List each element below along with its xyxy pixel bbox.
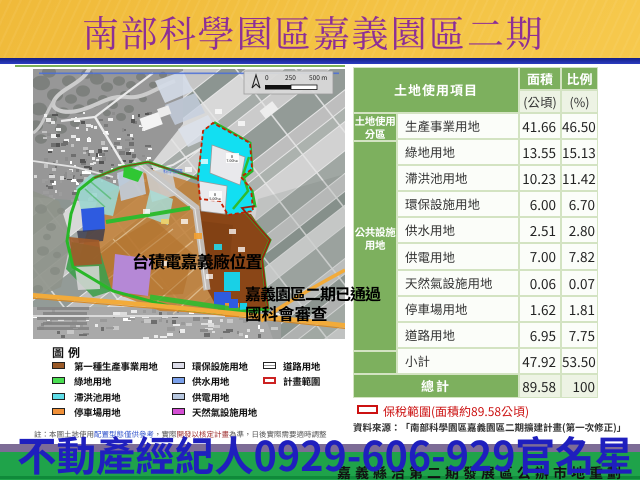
svg-text:5.00ha: 5.00ha bbox=[209, 197, 220, 202]
svg-text:科學園區: 科學園區 bbox=[163, 168, 183, 175]
svg-text:500 m: 500 m bbox=[309, 72, 327, 82]
svg-text:0: 0 bbox=[265, 72, 269, 82]
svg-text:250: 250 bbox=[285, 72, 296, 82]
svg-text:7.00ha: 7.00ha bbox=[226, 159, 237, 164]
